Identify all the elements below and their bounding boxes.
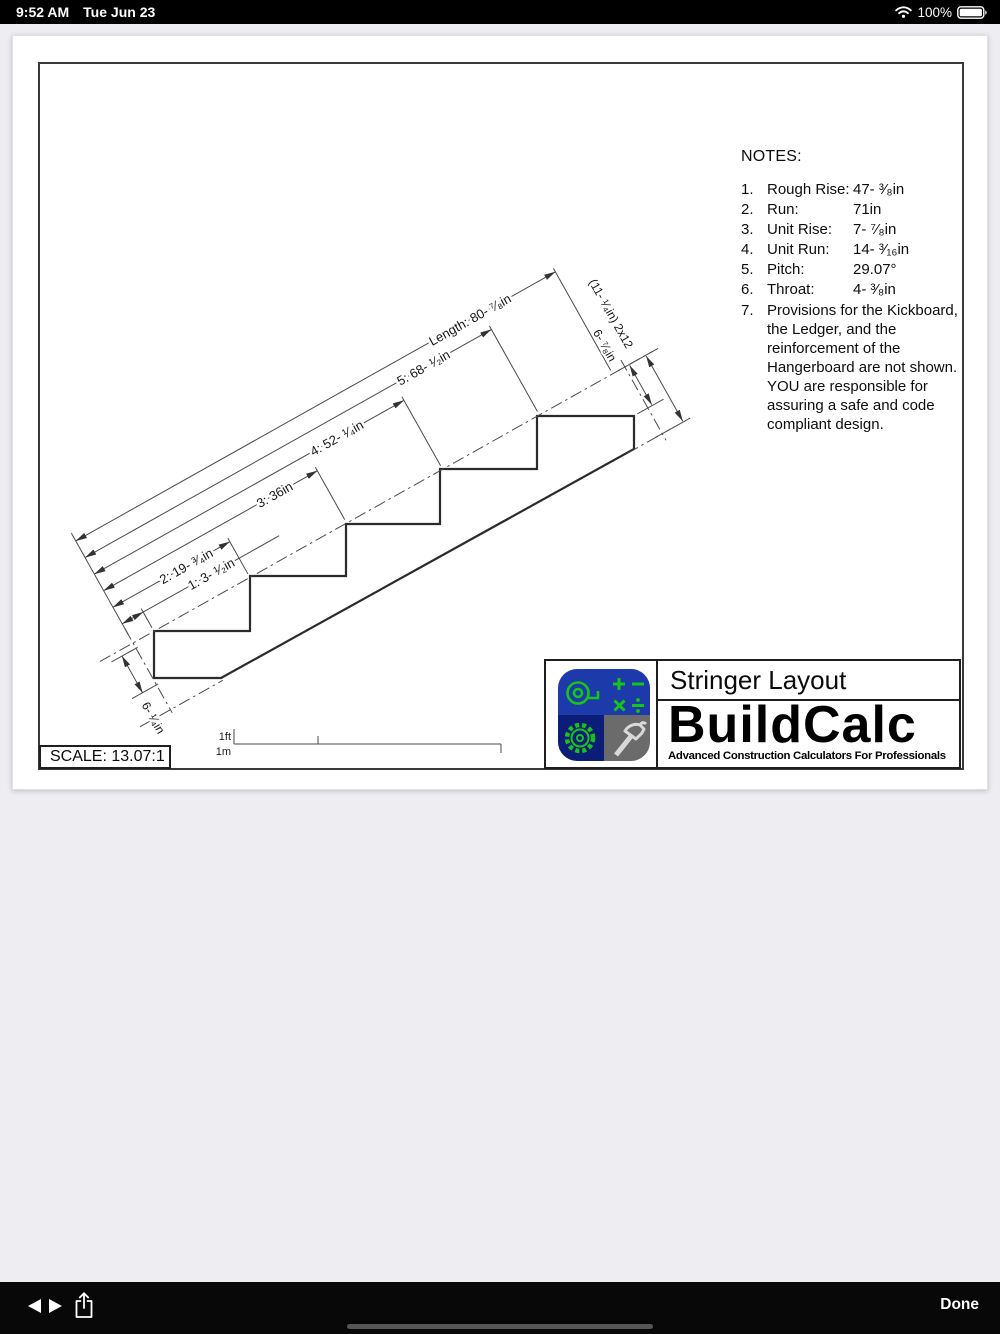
brand-name: BuildCalc [668, 701, 959, 749]
ruler-label-m: 1m [216, 746, 231, 758]
brand-tagline: Advanced Construction Calculators For Pr… [668, 750, 959, 762]
scale-ruler: 1ft 1m [216, 729, 501, 758]
done-button[interactable]: Done [940, 1296, 979, 1314]
status-date: Tue Jun 23 [83, 4, 155, 20]
wifi-icon [895, 6, 912, 18]
ruler-label-ft: 1ft [219, 731, 231, 743]
forward-button[interactable] [47, 1298, 63, 1314]
layout-line [100, 348, 658, 661]
share-button[interactable] [73, 1291, 95, 1319]
buildcalc-app-icon [558, 669, 650, 761]
dim-label-3: 3: 36in [254, 479, 295, 511]
note-item-7: 7. Provisions for the Kickboard, the Led… [741, 301, 969, 434]
note-item: 6.Throat:4- ³⁄₈in [741, 280, 969, 300]
dim-label-length: Length: 80- ⁷⁄₈in [426, 291, 513, 349]
home-indicator[interactable] [347, 1324, 653, 1329]
note-item: 2.Run:71in [741, 200, 969, 220]
title-block: Stringer Layout BuildCalc Advanced Const… [544, 659, 961, 769]
battery-percent: 100% [917, 5, 952, 20]
document-page: 1ft 1m 1: 3 [12, 35, 988, 790]
note-item: 3.Unit Rise:7- ⁷⁄₈in [741, 220, 969, 240]
notes-panel: NOTES: 1.Rough Rise:47- ³⁄₈in 2.Run:71in… [741, 148, 969, 434]
scale-box: SCALE: 13.07:1 [39, 745, 171, 769]
scale-label: SCALE: 13.07:1 [50, 748, 165, 766]
stringer-outline [154, 416, 634, 678]
battery-icon [957, 6, 988, 19]
dim-label-4: 4: 52- ¹⁄₄in [307, 417, 366, 459]
note-item: 5.Pitch:29.07° [741, 260, 969, 280]
back-button[interactable] [27, 1298, 43, 1314]
app-icon-cell [546, 661, 658, 767]
drawing-title: Stringer Layout [658, 661, 959, 701]
dim-label-bottom-depth: 6- ¹⁄₄in [139, 699, 168, 736]
note-item: 1.Rough Rise:47- ³⁄₈in [741, 180, 969, 200]
status-time: 9:52 AM [16, 4, 69, 20]
status-bar: 9:52 AM Tue Jun 23 100% [0, 0, 1000, 24]
dim-label-5: 5: 68- ¹⁄₂in [394, 347, 452, 389]
note-item: 4.Unit Run:14- ³⁄₁₆in [741, 240, 969, 260]
notes-title: NOTES: [741, 148, 969, 166]
